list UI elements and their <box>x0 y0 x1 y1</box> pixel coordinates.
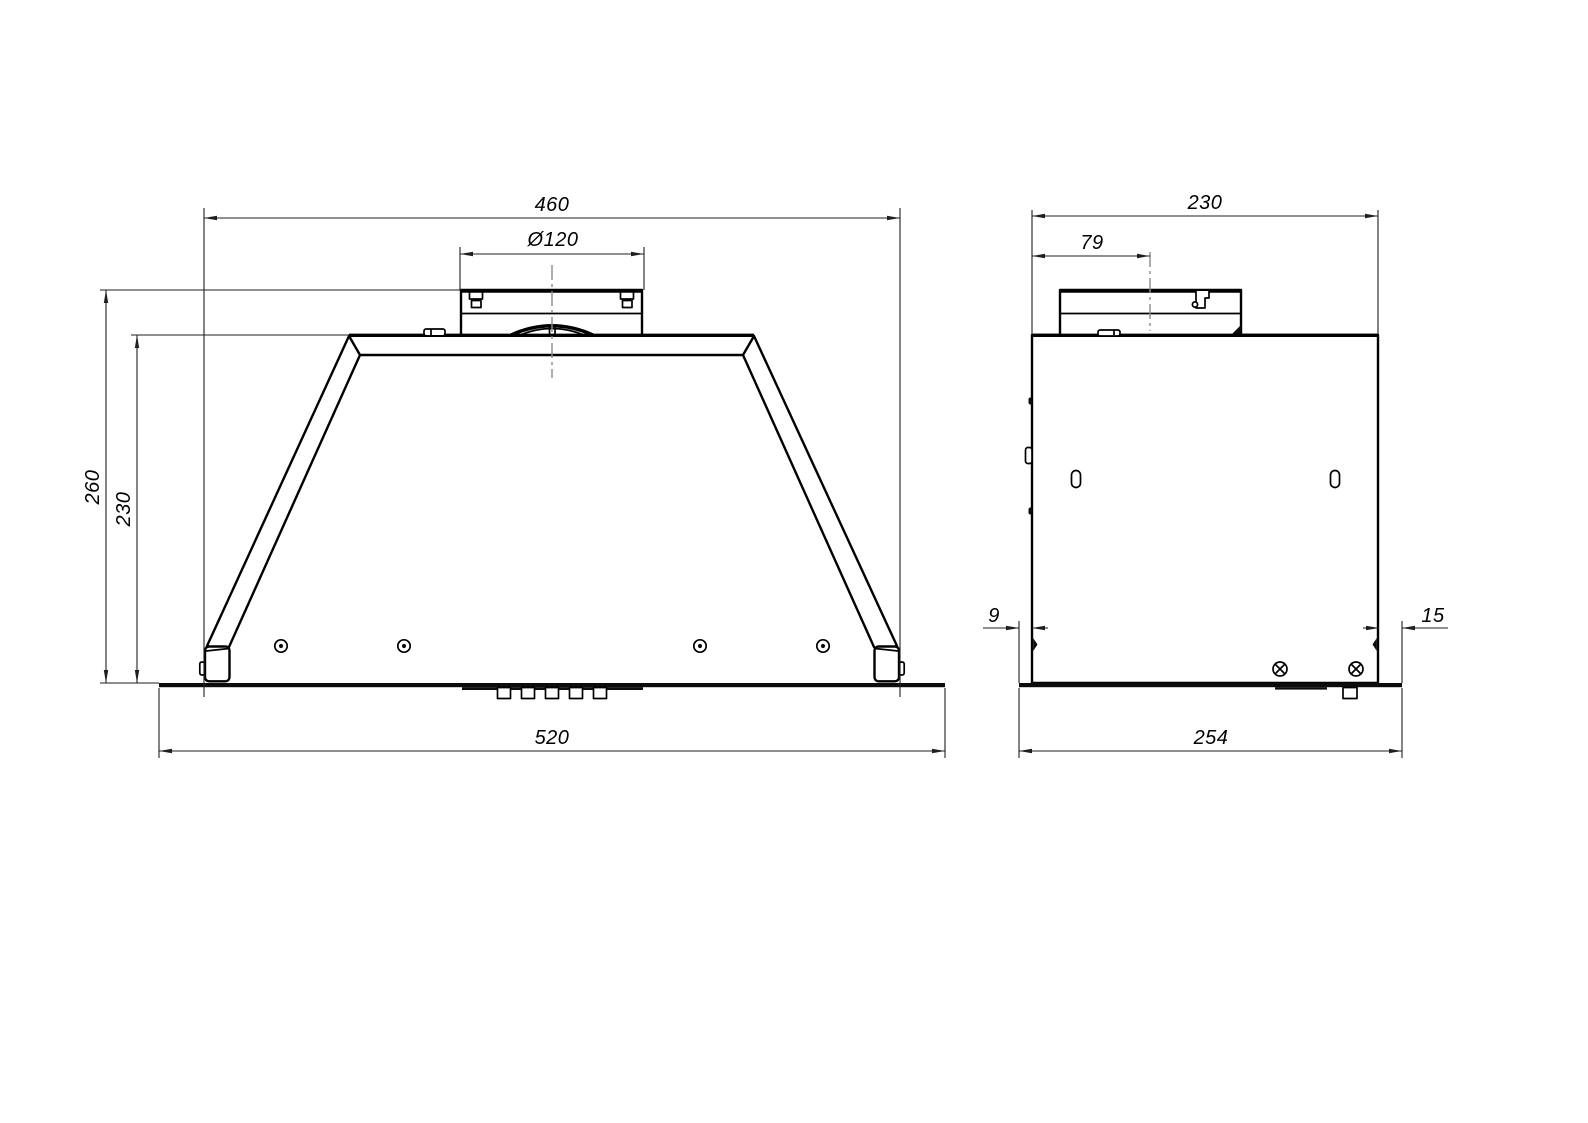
dim-value: 230 <box>113 492 135 528</box>
plate-recess <box>1275 687 1327 689</box>
vent-tab <box>522 688 535 699</box>
foot-body <box>205 647 230 682</box>
screw-center <box>279 644 283 648</box>
dim-arrow <box>1032 254 1045 258</box>
dim-lines <box>131 335 349 683</box>
front-top-clamp <box>424 329 445 336</box>
edge-stud <box>1029 398 1033 405</box>
vent-tab <box>570 688 583 699</box>
edge-stud <box>1029 508 1033 515</box>
plate-bar <box>159 683 945 687</box>
dim-arrow <box>1365 214 1378 218</box>
screw-center <box>821 644 825 648</box>
edge-bracket <box>1026 448 1033 464</box>
clamp-body <box>424 329 445 336</box>
dim-arrow <box>135 670 139 683</box>
side-bottom-plate <box>1019 683 1402 699</box>
dim-arrow <box>887 216 900 220</box>
dim-value: 79 <box>1080 232 1103 254</box>
dim-arrow <box>204 216 217 220</box>
front-collar-clip-left <box>470 291 483 308</box>
dim-value: 15 <box>1421 605 1445 627</box>
phillips-screw-icon <box>1273 662 1287 676</box>
notch-pin <box>1192 302 1197 307</box>
dim-front-total-height: 260 <box>82 290 461 683</box>
front-collar-clip-right <box>621 291 634 308</box>
screw-center <box>402 644 406 648</box>
screw-icon <box>275 640 287 652</box>
dim-arrow <box>1032 214 1045 218</box>
dim-arrow <box>1389 749 1402 753</box>
dim-arrow <box>104 670 108 683</box>
dim-lines <box>204 208 900 697</box>
front-body-outline <box>207 336 897 647</box>
screw-icon <box>817 640 829 652</box>
dim-arrow <box>104 290 108 303</box>
dim-value: 254 <box>1193 727 1229 749</box>
clamp-body <box>1098 330 1120 336</box>
dim-value: 520 <box>535 727 570 749</box>
dim-front-duct-diameter: Ø120 <box>460 229 644 290</box>
dim-arrow <box>631 252 644 256</box>
dim-value: 230 <box>1187 192 1223 214</box>
technical-drawing-canvas: 460 Ø120 260 230 520 230 79 <box>0 0 1588 1123</box>
mounting-slot <box>1072 471 1081 488</box>
front-body <box>200 325 904 682</box>
dim-value: 260 <box>82 470 104 506</box>
vent-tab <box>594 688 607 699</box>
side-top-clamp <box>1098 330 1120 336</box>
dim-arrow <box>1019 749 1032 753</box>
clip-foot <box>623 301 633 308</box>
dim-value: 9 <box>988 605 1000 627</box>
side-body-box <box>1032 335 1378 683</box>
front-screws <box>275 640 829 652</box>
side-view <box>1019 290 1402 699</box>
dim-arrow <box>1006 626 1019 630</box>
screw-icon <box>398 640 410 652</box>
dim-arrow <box>460 252 473 256</box>
front-bottom-plate <box>159 683 945 699</box>
plate-bar <box>1019 683 1402 687</box>
dim-side-duct-offset: 79 <box>1032 232 1150 258</box>
hood-dimension-drawing: 460 Ø120 260 230 520 230 79 <box>0 0 1588 1123</box>
dim-arrow <box>932 749 945 753</box>
vent-tab <box>498 688 511 699</box>
mounting-slot <box>1331 471 1340 488</box>
dim-value: 460 <box>535 194 570 216</box>
dim-arrow <box>1402 626 1415 630</box>
dim-arrow <box>135 335 139 348</box>
phillips-screw-icon <box>1349 662 1363 676</box>
dim-arrow <box>159 749 172 753</box>
dim-value: Ø120 <box>527 229 579 251</box>
screw-center <box>698 644 702 648</box>
screw-icon <box>694 640 706 652</box>
dim-front-body-height: 230 <box>113 335 349 683</box>
vent-tab <box>546 688 559 699</box>
foot-body <box>875 647 900 682</box>
clip-foot <box>472 301 482 308</box>
dim-arrow <box>1137 254 1150 258</box>
vent-tab <box>1343 688 1357 699</box>
